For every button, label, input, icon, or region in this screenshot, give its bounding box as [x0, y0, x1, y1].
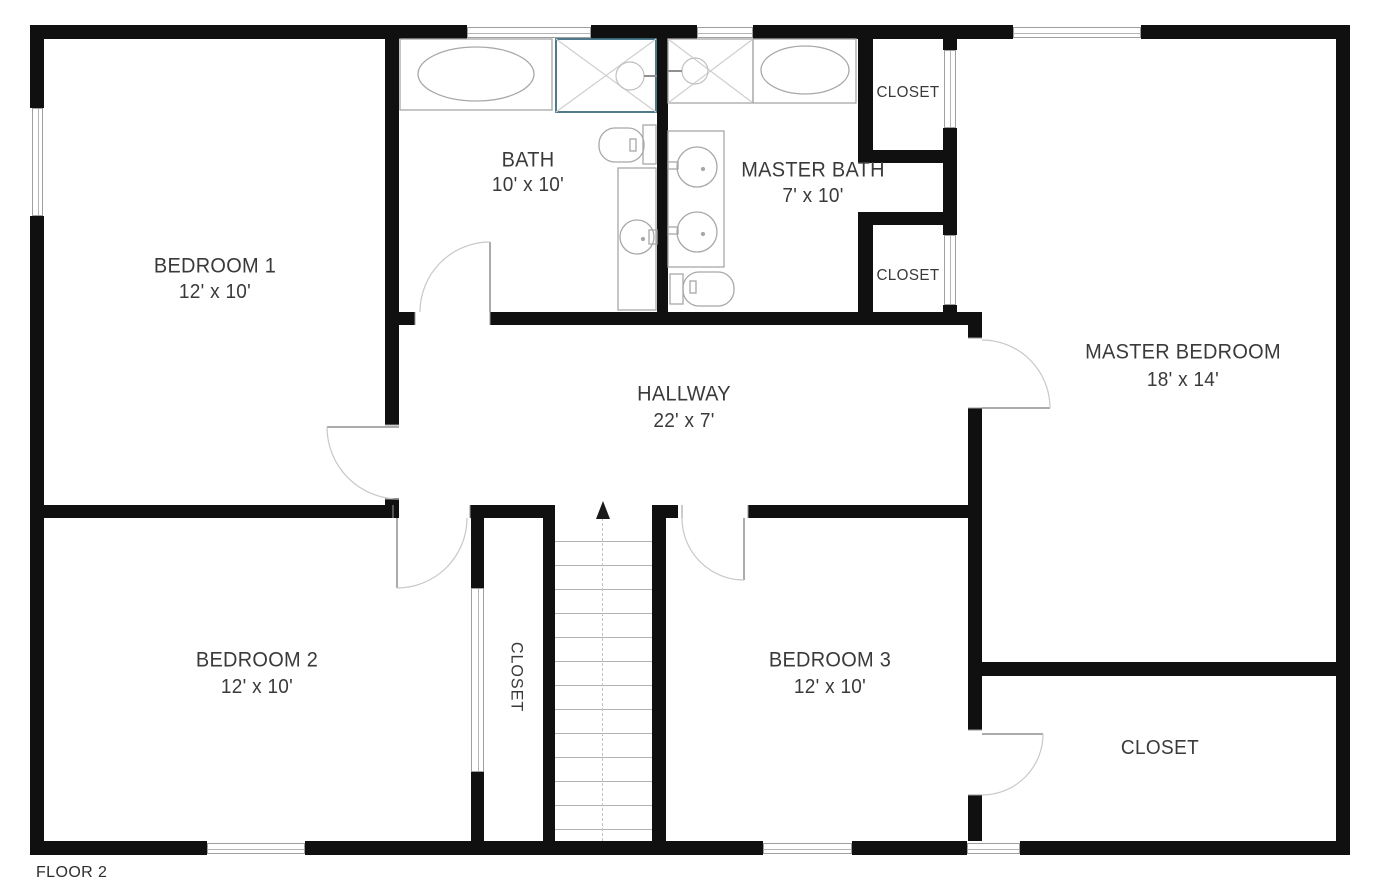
sliding-door — [944, 50, 956, 128]
wall-segment — [30, 39, 44, 108]
wall-segment — [1020, 841, 1350, 855]
room-dims-bedroom2: 12' x 10' — [221, 677, 293, 697]
room-label-closet-bedroom2: CLOSET — [509, 642, 526, 712]
room-dims-bath: 10' x 10' — [492, 175, 564, 195]
wall-segment — [852, 841, 967, 855]
floor-caption: FLOOR 2 — [36, 864, 107, 882]
sliding-door — [944, 235, 956, 305]
wall-segment — [30, 505, 393, 518]
wall-segment — [858, 39, 873, 163]
sliding-door — [471, 588, 484, 772]
room-label-bedroom2: BEDROOM 2 — [196, 650, 318, 671]
wall-segment — [471, 772, 484, 841]
toilet-icon — [599, 125, 656, 164]
door-bedroom1 — [327, 427, 399, 499]
wall-segment — [858, 212, 873, 325]
staircase-centerline — [602, 518, 603, 841]
wall-segment — [968, 408, 982, 730]
wall-segment — [490, 312, 968, 325]
door-bath — [420, 242, 490, 312]
room-dims-master-bedroom: 18' x 14' — [1147, 370, 1219, 390]
double-vanity-icon — [668, 131, 724, 267]
wall-segment — [968, 795, 982, 841]
door-bedroom2 — [397, 518, 467, 588]
door-master-bedroom — [982, 340, 1050, 408]
toilet-icon — [670, 272, 734, 306]
wall-segment — [1336, 39, 1350, 841]
window — [32, 108, 43, 216]
room-dims-master-bath: 7' x 10' — [782, 186, 843, 206]
vanity-sink-icon — [618, 168, 657, 310]
wall-segment — [305, 841, 763, 855]
fixtures-layer — [0, 0, 1384, 895]
bathtub-icon — [753, 39, 856, 103]
room-dims-hallway: 22' x 7' — [653, 411, 714, 431]
window — [763, 843, 852, 854]
room-dims-bedroom3: 12' x 10' — [794, 677, 866, 697]
bathtub-icon — [400, 39, 552, 110]
shower-icon — [668, 39, 753, 103]
room-dims-bedroom1: 12' x 10' — [179, 282, 251, 302]
wall-segment — [968, 312, 982, 338]
room-label-bath: BATH — [502, 150, 555, 171]
wall-segment — [943, 39, 957, 50]
window — [1013, 27, 1141, 38]
wall-segment — [30, 216, 44, 841]
room-label-closet-upper: CLOSET — [876, 85, 939, 101]
door-master-closet — [982, 734, 1043, 795]
room-label-closet-master: CLOSET — [1121, 738, 1199, 758]
wall-segment — [385, 39, 399, 425]
wall-segment — [30, 841, 207, 855]
wall-segment — [943, 305, 957, 325]
stairs-up-arrow-icon — [596, 501, 610, 519]
wall-segment — [591, 25, 697, 39]
wall-segment — [748, 505, 968, 518]
room-label-bedroom1: BEDROOM 1 — [154, 256, 276, 277]
wall-segment — [471, 505, 484, 588]
room-label-master-bath: MASTER BATH — [741, 160, 885, 181]
wall-segment — [385, 312, 415, 325]
wall-segment — [982, 662, 1336, 676]
wall-segment — [30, 25, 467, 39]
window — [967, 843, 1020, 854]
room-label-bedroom3: BEDROOM 3 — [769, 650, 891, 671]
staircase — [555, 518, 652, 841]
room-label-closet-lower: CLOSET — [876, 268, 939, 284]
shower-icon — [556, 39, 657, 112]
wall-segment — [543, 505, 555, 841]
wall-segment — [943, 128, 957, 235]
wall-segment — [657, 39, 668, 325]
wall-segment — [753, 25, 1013, 39]
wall-segment — [652, 505, 666, 841]
room-label-master-bedroom: MASTER BEDROOM — [1085, 342, 1281, 363]
floor-plan: BEDROOM 1 12' x 10' BATH 10' x 10' MASTE… — [0, 0, 1384, 895]
room-label-hallway: HALLWAY — [637, 384, 731, 405]
wall-segment — [1141, 25, 1350, 39]
window — [467, 27, 591, 38]
window — [207, 843, 305, 854]
door-bedroom3 — [682, 518, 744, 580]
window — [697, 27, 753, 38]
